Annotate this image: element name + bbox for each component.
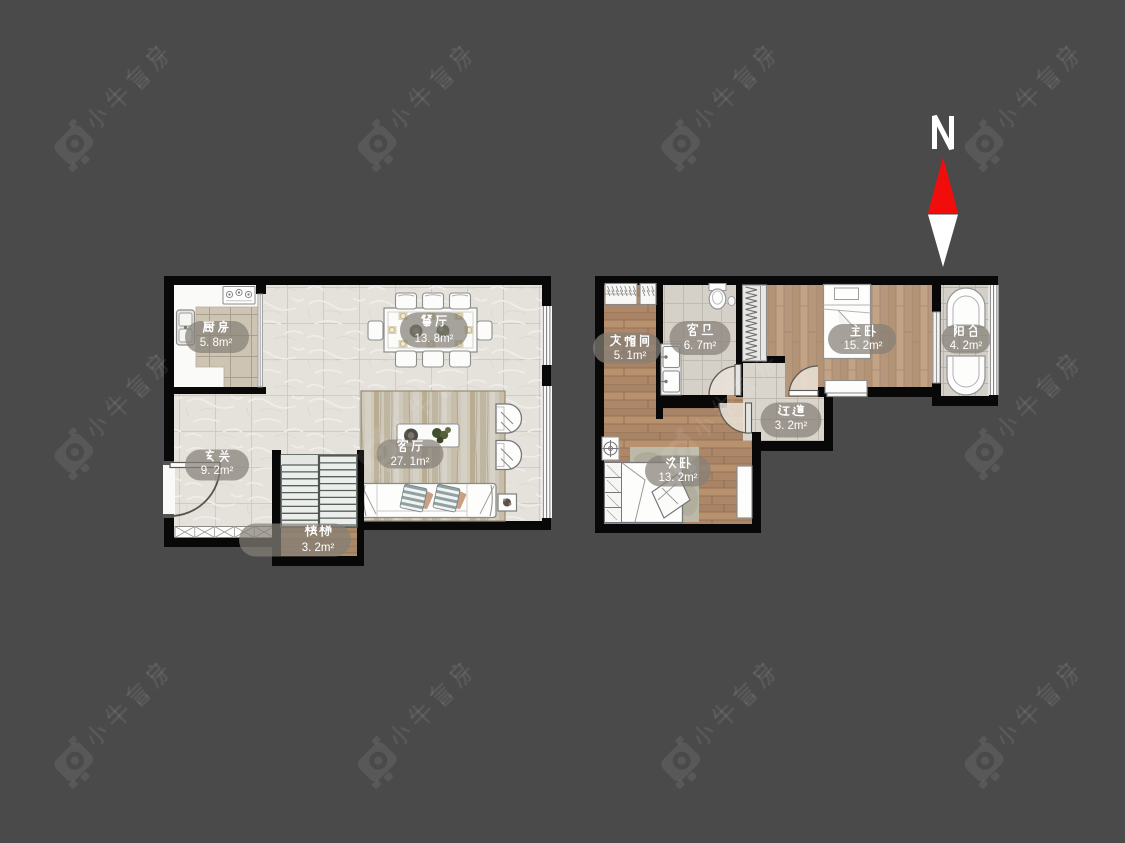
svg-text:5. 8m²: 5. 8m² (200, 337, 233, 349)
svg-text:3. 2m²: 3. 2m² (302, 542, 335, 554)
svg-text:3. 2m²: 3. 2m² (775, 420, 808, 432)
svg-text:27. 1m²: 27. 1m² (391, 456, 430, 468)
svg-text:9. 2m²: 9. 2m² (201, 465, 234, 477)
svg-text:5. 1m²: 5. 1m² (614, 350, 647, 362)
svg-text:6. 7m²: 6. 7m² (684, 340, 717, 352)
svg-text:4. 2m²: 4. 2m² (950, 340, 983, 352)
svg-text:15. 2m²: 15. 2m² (844, 340, 883, 352)
svg-text:13. 8m²: 13. 8m² (415, 333, 454, 345)
